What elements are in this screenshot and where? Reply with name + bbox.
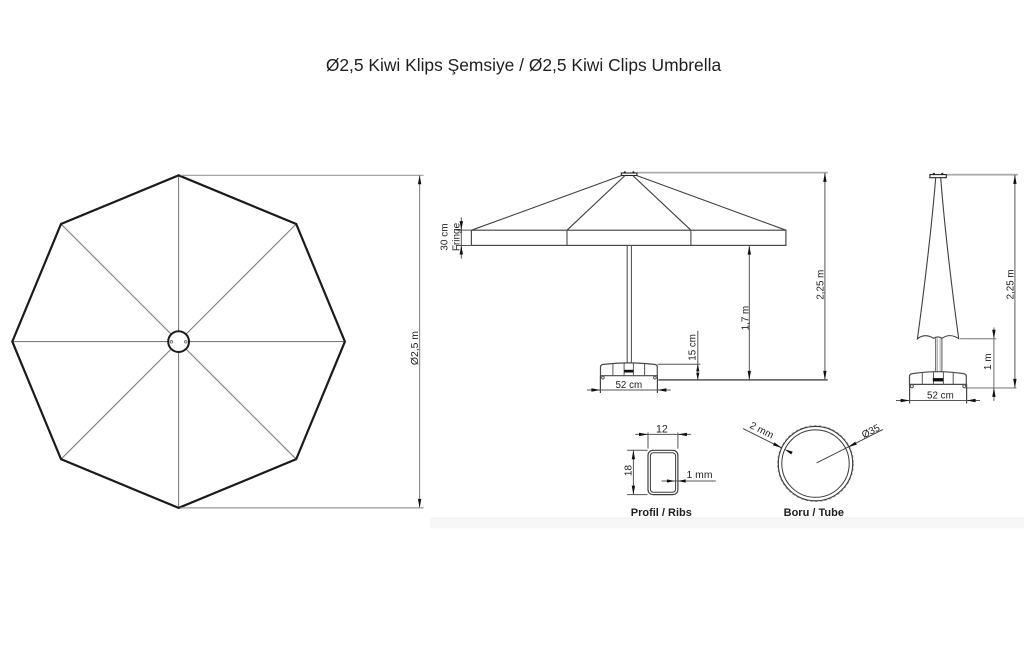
- svg-text:52 cm: 52 cm: [615, 380, 642, 391]
- svg-text:12: 12: [656, 423, 668, 435]
- svg-text:2,25 m: 2,25 m: [1005, 269, 1016, 299]
- svg-text:Profil / Ribs: Profil / Ribs: [631, 507, 692, 519]
- svg-text:18: 18: [624, 465, 635, 477]
- svg-text:Boru / Tube: Boru / Tube: [784, 507, 844, 519]
- svg-text:Fringe: Fringe: [452, 222, 463, 251]
- svg-text:Ø2,5 Kiwi Klips Şemsiye / Ø2,5: Ø2,5 Kiwi Klips Şemsiye / Ø2,5 Kiwi Clip…: [326, 55, 722, 75]
- svg-text:1 m: 1 m: [983, 353, 994, 370]
- svg-text:30 cm: 30 cm: [439, 223, 450, 250]
- svg-text:Ø2,5 m: Ø2,5 m: [410, 331, 421, 365]
- svg-text:1,7 m: 1,7 m: [740, 306, 751, 331]
- svg-text:52 cm: 52 cm: [927, 391, 954, 402]
- svg-text:2,25 m: 2,25 m: [815, 270, 826, 300]
- svg-text:15 cm: 15 cm: [687, 334, 698, 361]
- svg-text:1 mm: 1 mm: [687, 470, 713, 481]
